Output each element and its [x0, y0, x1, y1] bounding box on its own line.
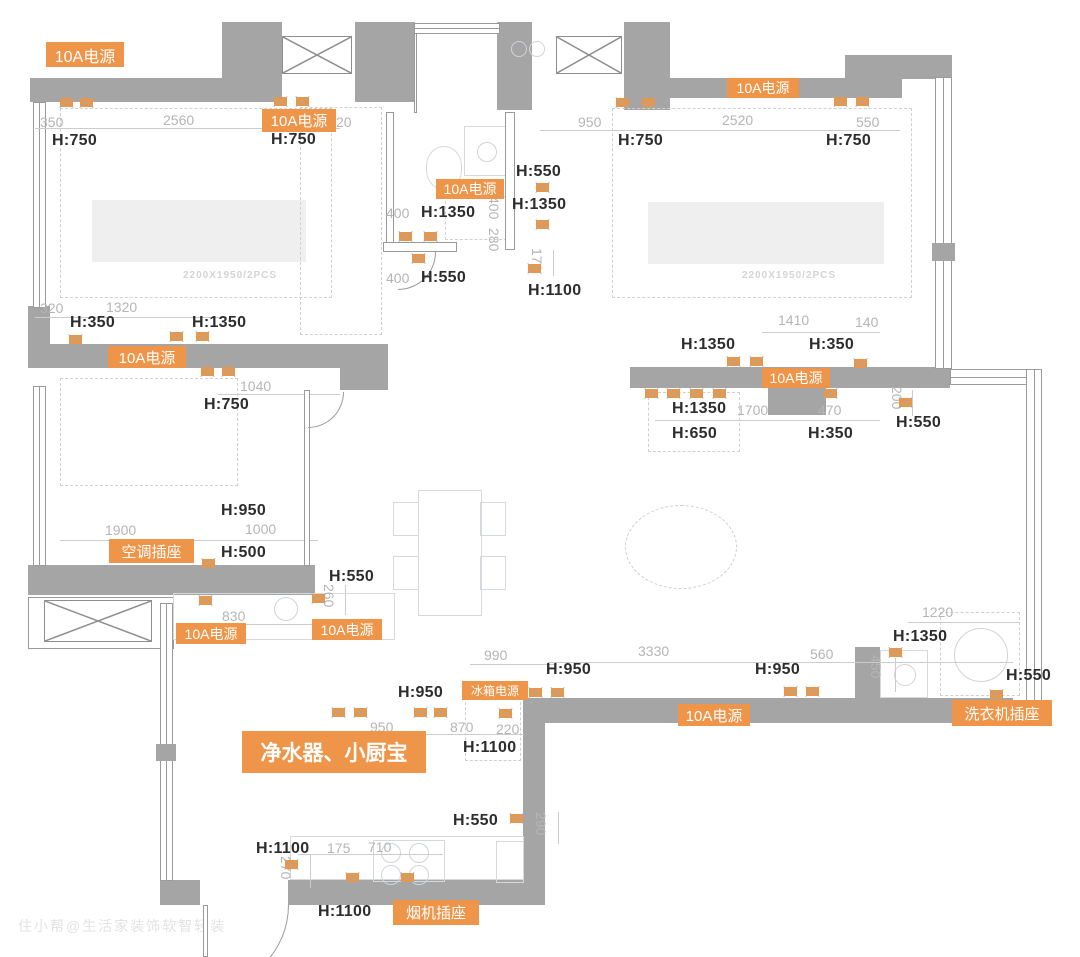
dimension-label: 830 — [222, 608, 245, 624]
furniture-box — [480, 556, 506, 590]
height-label: H:1350 — [421, 204, 475, 222]
height-label: H:350 — [70, 314, 115, 332]
fixture-circle — [894, 664, 916, 686]
wall — [523, 698, 1013, 723]
shaft-box — [282, 36, 352, 74]
height-label: H:1100 — [528, 282, 581, 300]
dimension-line — [912, 390, 913, 416]
height-label: H:350 — [809, 336, 854, 354]
floor-plan-canvas: 住小帮@生活家装饰软智轻装 35025602095025205504004004… — [0, 0, 1080, 957]
power-label: 烟机插座 — [393, 900, 479, 925]
wall — [222, 22, 282, 102]
partition — [505, 112, 515, 250]
power-socket-icon — [510, 814, 523, 823]
wall — [497, 22, 532, 110]
window-mullion — [156, 744, 176, 761]
dimension-line — [558, 812, 559, 844]
window-mullion — [932, 243, 955, 261]
window-glass-line — [39, 102, 40, 308]
shaft-box — [44, 600, 152, 642]
dimension-label: 350 — [40, 114, 63, 130]
dimension-label: 870 — [450, 719, 473, 735]
dimension-label: 470 — [818, 402, 841, 418]
power-socket-icon — [399, 232, 412, 241]
dimension-label: 990 — [484, 647, 507, 663]
height-label: H:500 — [221, 544, 266, 562]
dimension-label: 2560 — [163, 112, 194, 128]
power-socket-icon — [856, 97, 869, 106]
wall — [845, 55, 952, 79]
power-socket-icon — [551, 688, 564, 697]
window-glass-line — [943, 77, 944, 369]
power-label: 10A电源 — [727, 78, 799, 98]
dimension-label: 1900 — [105, 522, 136, 538]
power-socket-icon — [296, 97, 309, 106]
window-glass-line — [39, 386, 40, 566]
height-label: H:1100 — [256, 840, 309, 858]
dimension-label: 710 — [368, 839, 391, 855]
power-socket-icon — [806, 687, 819, 696]
dimension-label: 1320 — [106, 299, 137, 315]
height-label: H:750 — [204, 396, 249, 414]
height-label: H:1350 — [512, 196, 566, 214]
furniture-box — [393, 556, 419, 590]
fixture-circle — [381, 865, 401, 885]
shaft-box — [556, 36, 622, 74]
height-label: H:1350 — [672, 400, 726, 418]
dimension-label: 3330 — [638, 643, 669, 659]
dimension-label: 400 — [486, 196, 502, 219]
dimension-line — [655, 420, 880, 421]
height-label: H:950 — [755, 661, 800, 679]
partition — [386, 112, 394, 244]
furniture-box — [480, 502, 506, 536]
height-label: H:950 — [221, 502, 266, 520]
furniture-box — [418, 490, 482, 616]
power-socket-icon — [854, 359, 867, 368]
power-socket-icon — [667, 389, 680, 398]
power-socket-icon — [434, 708, 447, 717]
dimension-line — [895, 658, 896, 692]
power-socket-icon — [354, 708, 367, 717]
fixture-circle — [409, 843, 429, 863]
power-socket-icon — [202, 559, 215, 568]
power-socket-icon — [499, 709, 512, 718]
power-socket-icon — [199, 596, 212, 605]
power-socket-icon — [412, 254, 425, 263]
power-socket-icon — [414, 708, 427, 717]
power-label: 10A电源 — [678, 704, 750, 726]
dimension-line — [310, 855, 311, 888]
height-label: H:750 — [826, 132, 871, 150]
height-label: H:650 — [672, 425, 717, 443]
dimension-label: 1220 — [922, 604, 953, 620]
dimension-label: 560 — [810, 646, 833, 662]
dimension-label: 1040 — [240, 378, 271, 394]
wall — [523, 698, 545, 905]
power-label: 洗衣机插座 — [952, 700, 1052, 726]
dimension-label: 400 — [386, 270, 409, 286]
dimension-label: 280 — [486, 228, 502, 251]
power-label: 10A电源 — [312, 619, 382, 640]
power-label: 10A电源 — [176, 623, 246, 644]
dimension-line — [540, 130, 900, 131]
power-label: 10A电源 — [762, 368, 830, 388]
fixture-circle — [954, 628, 1008, 682]
furniture-ellipse — [625, 505, 737, 589]
wall — [160, 880, 200, 905]
furniture-fill — [648, 202, 884, 264]
furniture-fill — [92, 200, 306, 262]
power-socket-icon — [616, 98, 629, 107]
dimension-label: 400 — [386, 205, 409, 221]
power-label: 10A电源 — [436, 179, 504, 199]
dimension-label: 950 — [578, 114, 601, 130]
dimension-label: 550 — [856, 114, 879, 130]
power-socket-icon — [834, 97, 847, 106]
power-socket-icon — [824, 389, 837, 398]
power-label: 10A电源 — [108, 346, 186, 368]
power-label: 空调插座 — [109, 539, 194, 563]
wall — [28, 344, 388, 368]
furniture-box — [496, 841, 524, 883]
window-glass-line — [414, 28, 500, 29]
dimension-label: 220 — [496, 721, 519, 737]
dimension-label: 290 — [533, 812, 549, 835]
dimension-label: 175 — [327, 840, 350, 856]
furniture-dash — [60, 378, 238, 486]
fixture-circle — [274, 597, 298, 621]
power-socket-icon — [690, 389, 703, 398]
power-socket-icon — [889, 648, 902, 657]
power-label: 10A电源 — [262, 109, 336, 132]
power-socket-icon — [713, 389, 726, 398]
bed-size-label: 2200X1950/2PCS — [183, 270, 277, 281]
height-label: H:1350 — [893, 628, 947, 646]
wall — [28, 565, 315, 595]
fixture-circle — [511, 41, 527, 57]
power-socket-icon — [401, 873, 414, 882]
dimension-label: 1700 — [737, 402, 768, 418]
power-socket-icon — [222, 367, 235, 376]
power-socket-icon — [424, 232, 437, 241]
power-socket-icon — [784, 687, 797, 696]
height-label: H:350 — [808, 425, 853, 443]
dimension-line — [345, 585, 346, 615]
dimension-line — [908, 622, 1020, 623]
power-socket-icon — [750, 357, 763, 366]
power-socket-icon — [285, 860, 298, 869]
power-socket-icon — [642, 98, 655, 107]
dimension-label: 1000 — [245, 521, 276, 537]
power-socket-icon — [80, 98, 93, 107]
power-socket-icon — [990, 690, 1003, 699]
wall — [340, 368, 388, 390]
power-socket-icon — [170, 332, 183, 341]
power-socket-icon — [332, 708, 345, 717]
height-label: H:550 — [453, 812, 498, 830]
wall — [355, 22, 415, 102]
power-socket-icon — [528, 264, 541, 273]
dimension-line — [470, 664, 555, 665]
power-socket-icon — [69, 335, 82, 344]
height-label: H:550 — [1006, 667, 1051, 685]
power-socket-icon — [536, 183, 549, 192]
height-label: H:1100 — [463, 739, 516, 757]
height-label: H:550 — [516, 163, 561, 181]
power-socket-icon — [645, 389, 658, 398]
power-socket-icon — [899, 398, 912, 407]
height-label: H:950 — [398, 684, 443, 702]
power-label: 净水器、小厨宝 — [242, 731, 426, 773]
dimension-label: 2520 — [722, 112, 753, 128]
door-arc — [308, 392, 344, 428]
dimension-line — [762, 332, 880, 333]
power-socket-icon — [346, 873, 359, 882]
window-glass-line — [1034, 369, 1035, 707]
height-label: H:750 — [52, 132, 97, 150]
height-label: H:750 — [271, 131, 316, 149]
height-label: H:1100 — [318, 903, 371, 921]
height-label: H:550 — [329, 568, 374, 586]
dimension-line — [553, 250, 554, 276]
dimension-label: 320 — [40, 300, 63, 316]
height-label: H:1350 — [192, 314, 246, 332]
window-glass-line — [166, 603, 167, 881]
height-label: H:550 — [421, 269, 466, 287]
fixture-circle — [529, 41, 545, 57]
furniture-box — [393, 502, 419, 536]
door-arc — [205, 905, 289, 957]
bed-size-label: 2200X1950/2PCS — [742, 270, 836, 281]
fixture-circle — [477, 142, 497, 162]
dimension-label: 450 — [868, 655, 884, 678]
wall — [624, 22, 670, 110]
height-label: H:950 — [546, 661, 591, 679]
dimension-label: 140 — [855, 314, 878, 330]
partition — [414, 33, 417, 113]
dimension-label: 1410 — [778, 312, 809, 328]
power-socket-icon — [312, 594, 325, 603]
power-socket-icon — [196, 332, 209, 341]
height-label: H:750 — [618, 132, 663, 150]
power-socket-icon — [201, 367, 214, 376]
power-socket-icon — [536, 220, 549, 229]
height-label: H:1350 — [681, 336, 735, 354]
height-label: H:550 — [896, 414, 941, 432]
power-label: 冰箱电源 — [462, 681, 528, 700]
power-socket-icon — [727, 357, 740, 366]
watermark: 住小帮@生活家装饰软智轻装 — [18, 916, 226, 936]
power-socket-icon — [60, 98, 73, 107]
power-label: 10A电源 — [46, 42, 124, 67]
power-socket-icon — [529, 688, 542, 697]
partition — [383, 242, 457, 252]
power-socket-icon — [274, 97, 287, 106]
dimension-label: 20 — [336, 114, 352, 130]
